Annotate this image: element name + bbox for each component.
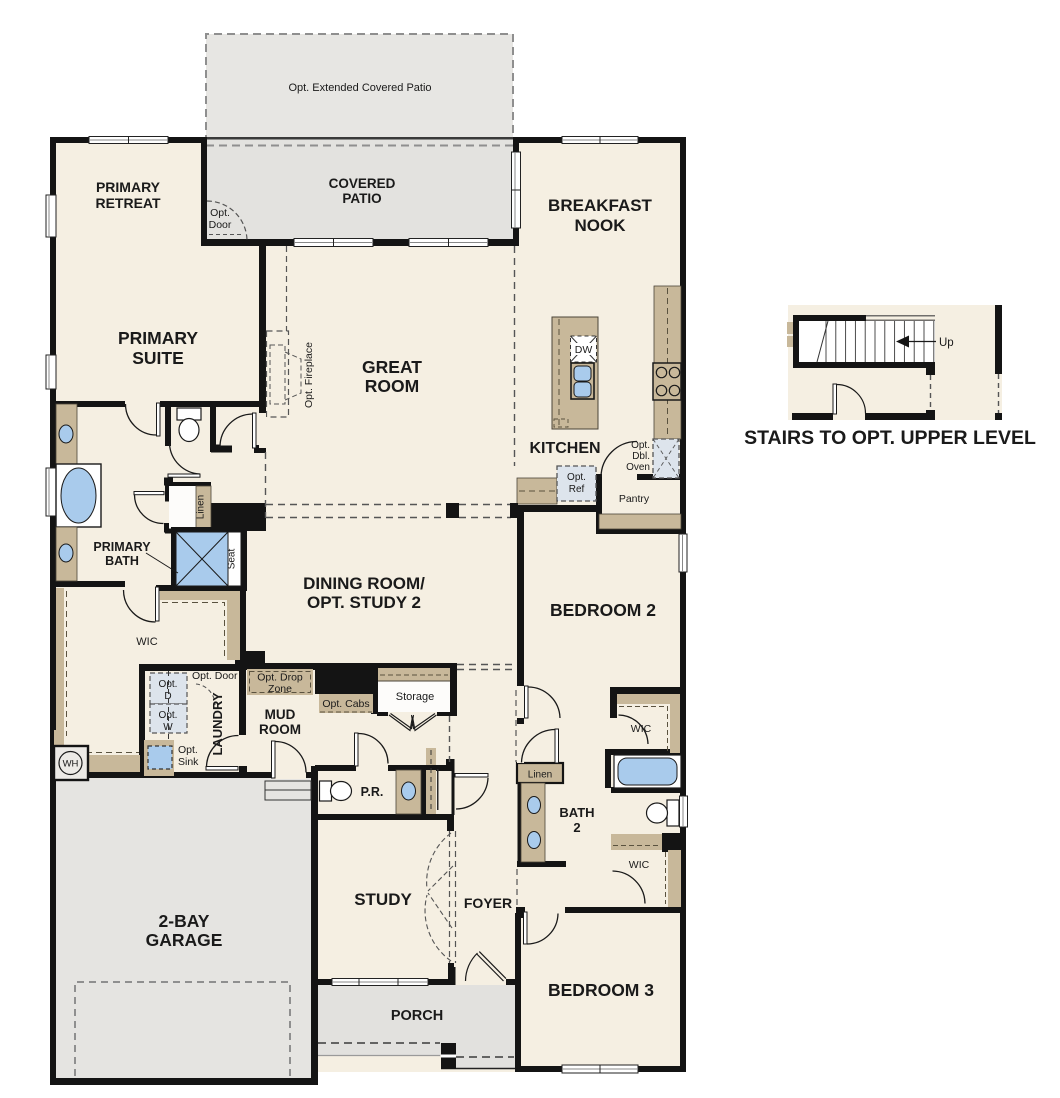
svg-text:NOOK: NOOK (575, 216, 627, 235)
svg-text:Linen: Linen (528, 770, 552, 781)
svg-text:Opt. Extended Covered Patio: Opt. Extended Covered Patio (288, 82, 431, 94)
svg-text:DW: DW (575, 344, 593, 356)
svg-text:BREAKFAST: BREAKFAST (548, 196, 653, 215)
svg-text:GREAT: GREAT (362, 357, 422, 377)
svg-text:Opt. Cabs: Opt. Cabs (322, 698, 369, 710)
svg-text:BEDROOM 2: BEDROOM 2 (550, 600, 656, 620)
svg-text:OPT. STUDY 2: OPT. STUDY 2 (307, 593, 421, 612)
svg-text:PRIMARY: PRIMARY (118, 328, 198, 348)
svg-text:Door: Door (209, 219, 232, 231)
svg-text:Opt.: Opt. (210, 207, 230, 219)
svg-text:FOYER: FOYER (464, 895, 512, 911)
svg-text:Linen: Linen (196, 495, 207, 519)
svg-text:Up: Up (939, 337, 954, 349)
svg-text:COVERED: COVERED (329, 176, 396, 191)
svg-text:Opt. Drop: Opt. Drop (257, 672, 303, 684)
svg-text:Zone: Zone (268, 683, 292, 695)
svg-text:WH: WH (63, 759, 79, 770)
svg-text:Dbl.: Dbl. (632, 451, 650, 462)
svg-text:GARAGE: GARAGE (146, 930, 223, 950)
svg-text:RETREAT: RETREAT (95, 195, 161, 211)
svg-text:Storage: Storage (396, 691, 435, 703)
svg-text:LAUNDRY: LAUNDRY (210, 692, 225, 755)
svg-text:Opt. Door: Opt. Door (192, 670, 238, 682)
svg-text:Seat: Seat (227, 548, 238, 569)
svg-text:Opt.: Opt. (178, 744, 198, 756)
svg-text:PRIMARY: PRIMARY (93, 540, 151, 554)
svg-text:WIC: WIC (631, 723, 652, 735)
svg-text:Opt. Fireplace: Opt. Fireplace (303, 342, 315, 408)
svg-text:2: 2 (573, 820, 580, 835)
svg-text:SUITE: SUITE (132, 348, 184, 368)
svg-text:KITCHEN: KITCHEN (529, 440, 600, 457)
svg-text:ROOM: ROOM (259, 722, 301, 737)
svg-text:WIC: WIC (629, 859, 650, 871)
svg-text:Opt.: Opt. (567, 472, 586, 483)
svg-text:PATIO: PATIO (342, 191, 381, 206)
svg-text:MUD: MUD (265, 707, 296, 722)
svg-text:ROOM: ROOM (365, 376, 419, 396)
svg-text:PORCH: PORCH (391, 1008, 443, 1024)
svg-text:BATH: BATH (559, 805, 594, 820)
svg-text:PRIMARY: PRIMARY (96, 179, 161, 195)
svg-text:DINING ROOM/: DINING ROOM/ (303, 574, 425, 593)
svg-text:Ref: Ref (569, 484, 585, 495)
svg-text:WIC: WIC (136, 636, 157, 648)
svg-text:P.R.: P.R. (361, 785, 384, 799)
svg-text:Oven: Oven (626, 462, 650, 473)
svg-text:Sink: Sink (178, 756, 199, 768)
svg-text:2-BAY: 2-BAY (159, 911, 210, 931)
svg-text:STUDY: STUDY (354, 890, 412, 909)
svg-text:BEDROOM 3: BEDROOM 3 (548, 980, 654, 1000)
svg-text:Pantry: Pantry (619, 493, 650, 505)
svg-text:BATH: BATH (105, 554, 139, 568)
svg-text:STAIRS TO OPT. UPPER LEVEL: STAIRS TO OPT. UPPER LEVEL (744, 427, 1036, 449)
